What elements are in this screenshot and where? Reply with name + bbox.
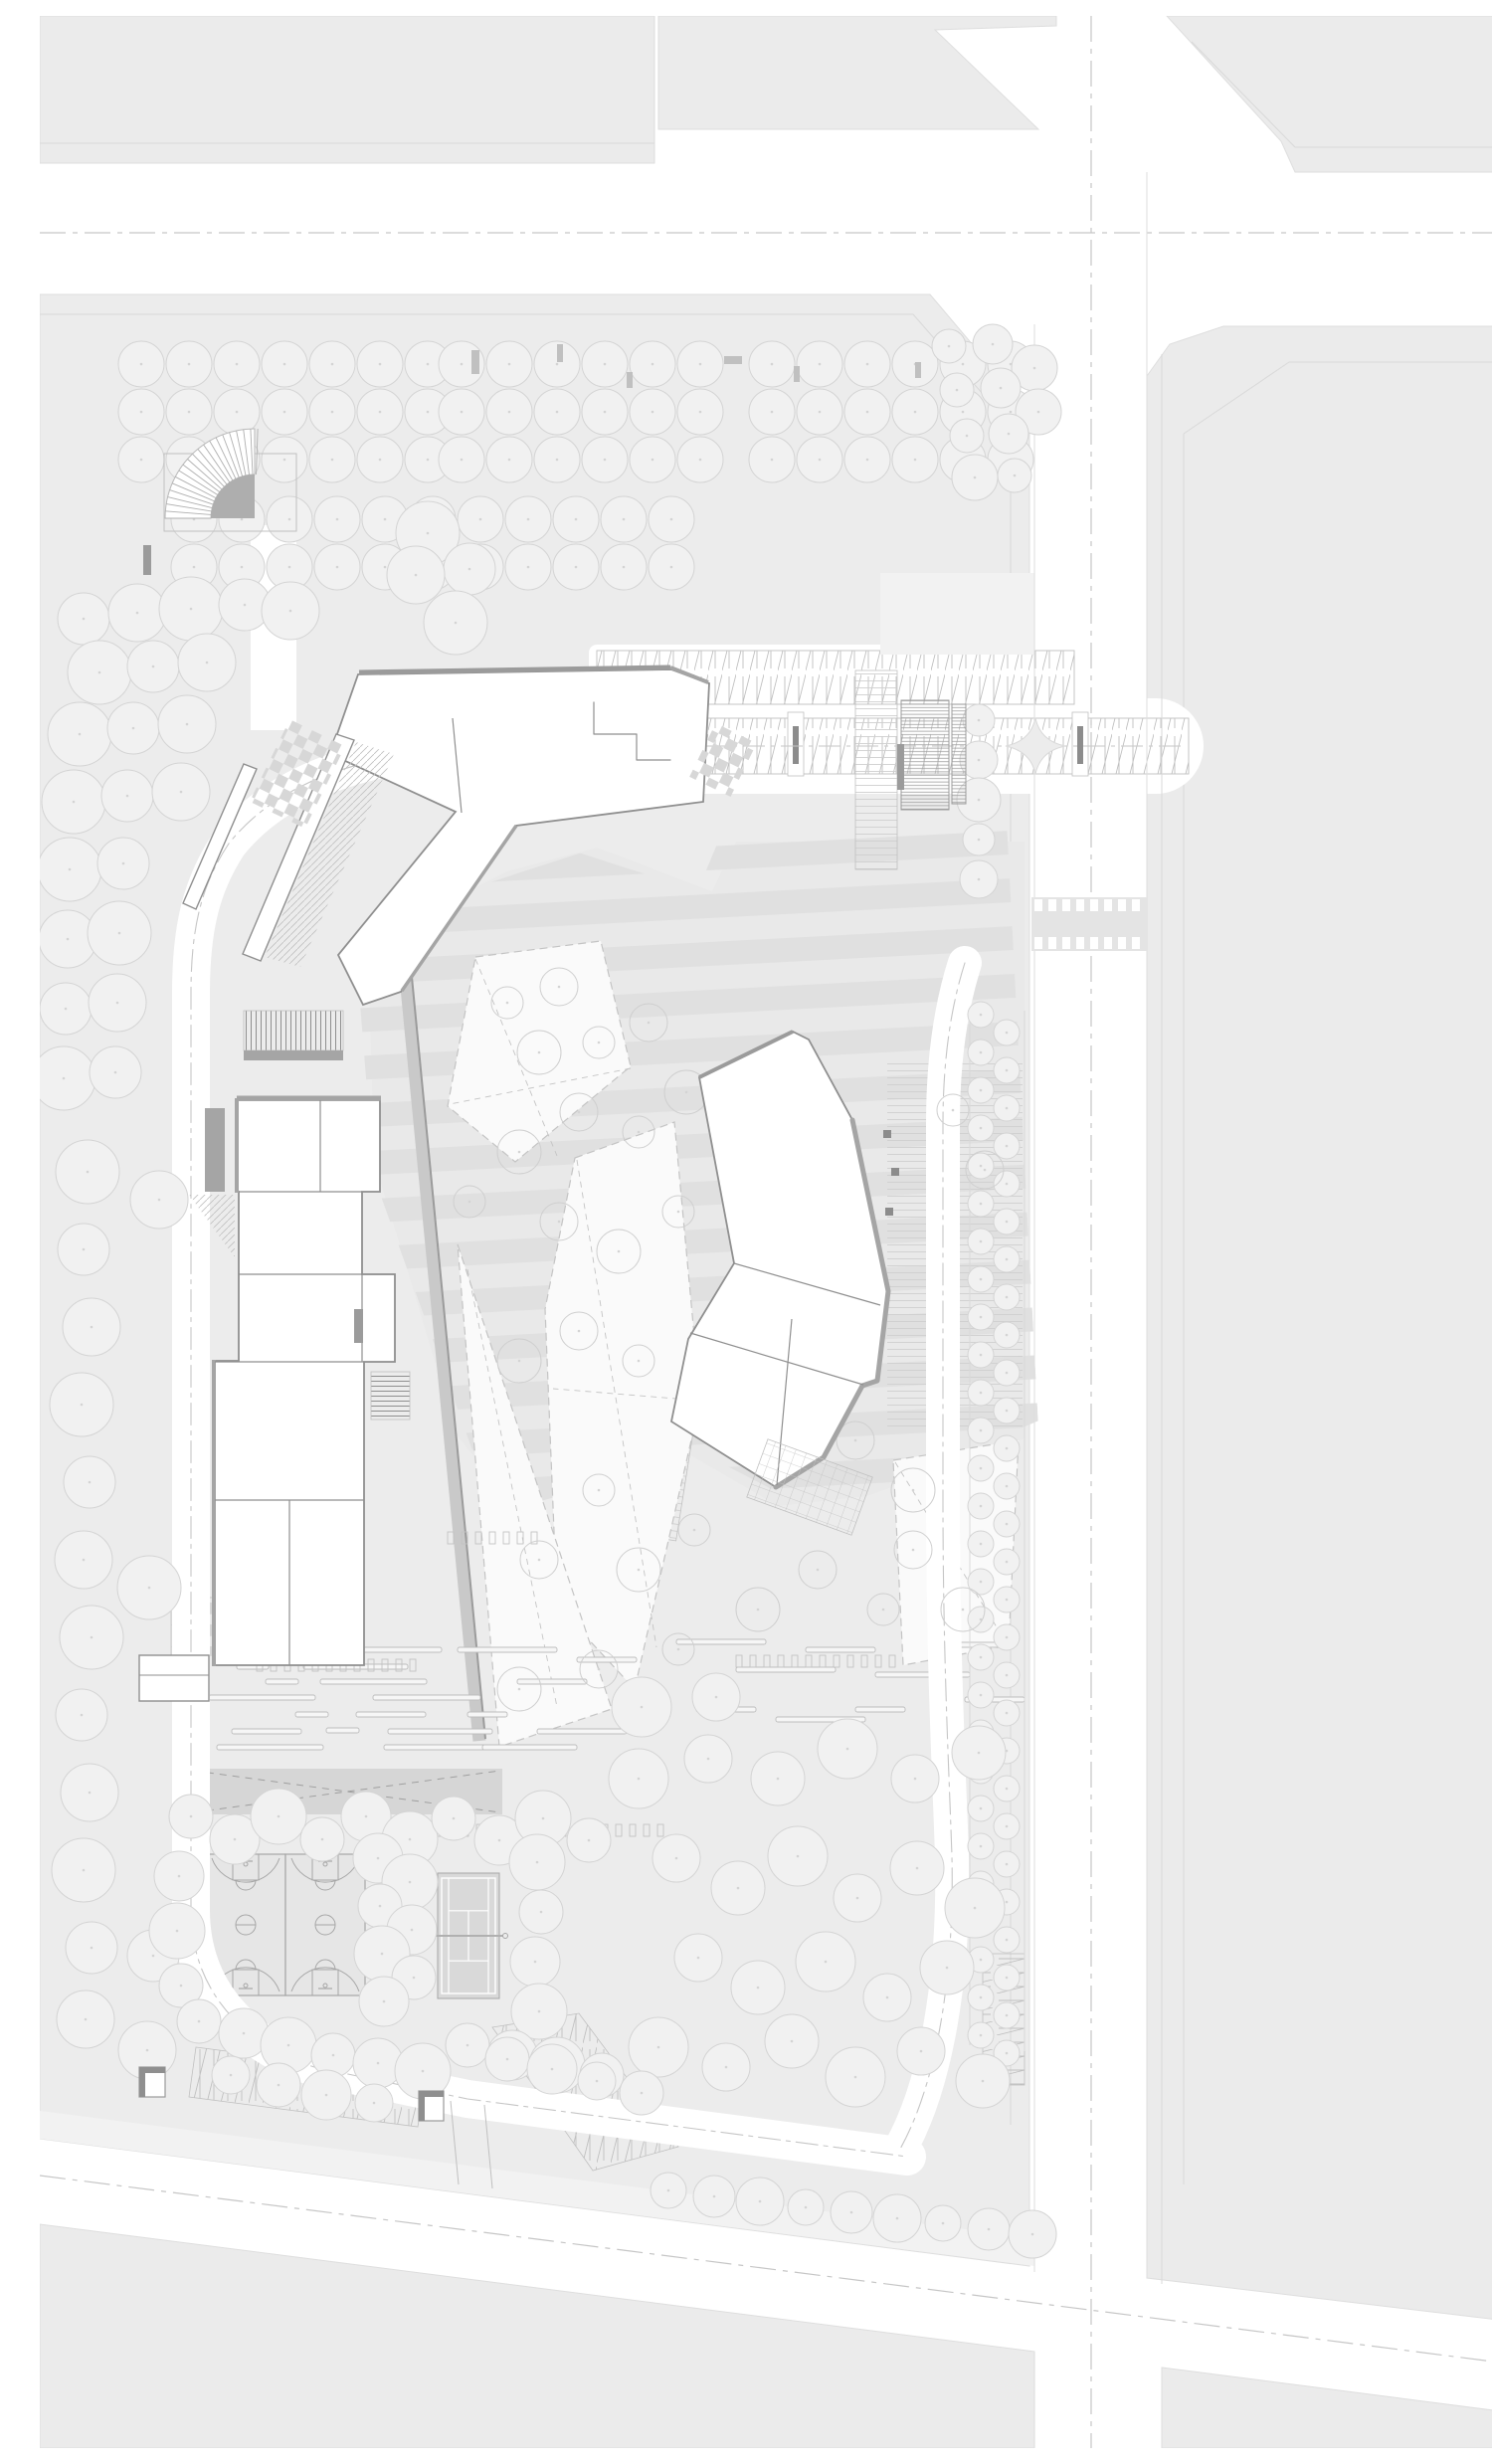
- tree-grid: [236, 411, 239, 414]
- bench-mark: [885, 1208, 893, 1216]
- tree-grid: [508, 459, 511, 462]
- forest-west: [180, 791, 183, 794]
- tree-grid: [331, 411, 334, 414]
- bench-mark: [891, 1168, 899, 1176]
- trees-southeast: [854, 2076, 857, 2079]
- trees-entry: [978, 719, 981, 722]
- tree-grid: [241, 518, 244, 521]
- trees-courts: [453, 1817, 456, 1820]
- bench-field: [209, 1695, 315, 1700]
- pergola-south: [371, 1372, 410, 1420]
- forest-west: [83, 1559, 86, 1562]
- trees-plaza: [518, 1688, 521, 1691]
- forest-west: [114, 1071, 117, 1074]
- crosswalk-ticks: [1118, 937, 1126, 949]
- forest-west: [122, 862, 125, 865]
- trees-southeast: [856, 1897, 859, 1900]
- trees-corner-ne: [966, 435, 969, 438]
- trees-courts: [287, 2044, 290, 2047]
- trees-corner-ne: [1037, 411, 1040, 414]
- ne-canopy-bar: [897, 744, 904, 790]
- verge-trees: [1006, 1788, 1009, 1791]
- verge-trees: [980, 1656, 983, 1659]
- forest-west: [98, 671, 101, 674]
- crosswalk-ticks: [1132, 899, 1140, 911]
- tree-grid: [819, 411, 822, 414]
- verge-trees: [1006, 1523, 1009, 1526]
- shelter-mark: [915, 362, 921, 378]
- forest-west: [126, 795, 129, 798]
- tree-grid: [652, 363, 654, 366]
- verge-trees: [1006, 1334, 1009, 1337]
- trees-plaza: [638, 1131, 641, 1134]
- trees-courts: [383, 2000, 386, 2003]
- verge-trees: [980, 1051, 983, 1054]
- tree-grid: [527, 518, 530, 521]
- trees-plaza: [618, 1250, 621, 1253]
- forest-west: [83, 1869, 86, 1872]
- site-plan-figure: [40, 16, 1492, 2448]
- tree-grid: [336, 566, 339, 569]
- trees-entry: [978, 839, 981, 842]
- trees-plaza: [677, 1211, 680, 1214]
- verge-trees: [980, 2034, 983, 2037]
- trees-plaza: [882, 1609, 885, 1611]
- trees-bottom-row: [759, 2200, 762, 2203]
- trees-southeast: [946, 1967, 949, 1970]
- tree-grid: [140, 411, 143, 414]
- trees-bottom-row: [942, 2222, 945, 2225]
- trees-bottom-row: [667, 2189, 670, 2192]
- verge-trees: [1006, 1863, 1009, 1866]
- trees-corner-ne: [956, 389, 959, 392]
- trees-courts: [381, 1953, 384, 1956]
- forest-west: [136, 612, 139, 615]
- tree-grid: [193, 566, 196, 569]
- trees-corner-ne: [1014, 474, 1017, 477]
- bench-field: [326, 1728, 359, 1733]
- tree-grid: [283, 411, 286, 414]
- shelter-mark: [724, 356, 742, 364]
- trees-southeast: [916, 1867, 919, 1870]
- bench-field: [537, 1729, 627, 1734]
- trees-southeast: [737, 1887, 740, 1890]
- bench-field: [232, 1729, 301, 1734]
- crosswalk-ticks: [1048, 937, 1056, 949]
- crosswalk-ticks: [1034, 937, 1042, 949]
- verge-trees: [1006, 1258, 1009, 1261]
- ne-canopy: [952, 704, 966, 804]
- crosswalk-ticks: [1090, 899, 1098, 911]
- tree-grid: [623, 566, 626, 569]
- trees-plaza: [468, 1201, 471, 1204]
- tree-grid: [866, 363, 869, 366]
- trees-courts: [409, 1881, 412, 1884]
- verge-trees: [1006, 1977, 1009, 1980]
- trees-courts: [466, 2044, 469, 2047]
- verge-trees: [1006, 1636, 1009, 1639]
- verge-trees: [980, 1996, 983, 1999]
- trees-plaza: [558, 986, 561, 989]
- tree-grid: [819, 363, 822, 366]
- tree-grid: [461, 459, 464, 462]
- tree-grid: [556, 363, 559, 366]
- tree-grid: [914, 459, 917, 462]
- tree-grid: [699, 363, 702, 366]
- verge-trees: [1006, 2052, 1009, 2055]
- trees-plaza: [518, 1360, 521, 1363]
- trees-courts: [332, 2054, 335, 2057]
- crosswalk-ticks: [1034, 899, 1042, 911]
- trees-bottom-row: [988, 2228, 991, 2231]
- tree-grid: [623, 518, 626, 521]
- tree-grid: [771, 459, 774, 462]
- tree-grid: [771, 411, 774, 414]
- forest-west: [73, 801, 76, 804]
- bench-field: [388, 1729, 492, 1734]
- verge-trees: [1006, 1069, 1009, 1072]
- trees-bottom-row: [805, 2206, 808, 2209]
- crosswalk-ticks: [1076, 937, 1084, 949]
- trees-plaza: [962, 1609, 965, 1611]
- bench-field: [373, 1695, 480, 1700]
- trees-plaza: [638, 1569, 641, 1572]
- trees-south-strip: [641, 2092, 644, 2095]
- crosswalk-ticks: [1132, 937, 1140, 949]
- forest-west: [468, 568, 471, 571]
- trees-southeast: [846, 1748, 849, 1751]
- forest-west: [455, 622, 458, 625]
- trees-plaza: [952, 1109, 955, 1112]
- trees-plaza: [538, 1559, 541, 1562]
- forest-west: [67, 938, 70, 941]
- stall-divider-post: [1077, 726, 1083, 764]
- tree-grid: [427, 363, 430, 366]
- tree-grid: [508, 411, 511, 414]
- tree-grid: [140, 363, 143, 366]
- verge-trees: [980, 1543, 983, 1546]
- tree-grid: [188, 411, 191, 414]
- forest-west: [63, 1077, 66, 1080]
- tree-grid: [288, 518, 291, 521]
- tree-grid: [140, 459, 143, 462]
- tree-grid: [962, 411, 965, 414]
- trees-southeast: [641, 1706, 644, 1709]
- trees-south-strip: [596, 2080, 599, 2083]
- tree-grid: [914, 411, 917, 414]
- trees-courts: [176, 1930, 179, 1933]
- bench-field: [736, 1667, 836, 1672]
- forest-west: [81, 1404, 84, 1407]
- stall-divider-post: [793, 726, 799, 764]
- trees-southeast: [715, 1696, 718, 1699]
- forest-west: [244, 604, 247, 607]
- tree-grid: [331, 459, 334, 462]
- forest-west: [91, 1326, 93, 1329]
- bench-field: [295, 1712, 328, 1717]
- trees-entry: [978, 799, 981, 802]
- trees-corner-ne: [1000, 387, 1003, 390]
- verge-trees: [1006, 1296, 1009, 1299]
- verge-trees: [980, 1127, 983, 1130]
- tree-grid: [236, 363, 239, 366]
- trees-plaza: [817, 1569, 820, 1572]
- verge-trees: [980, 1581, 983, 1584]
- trees-plaza: [984, 1169, 987, 1172]
- trees-courts: [377, 2062, 380, 2065]
- tree-grid: [670, 566, 673, 569]
- crosswalk-ticks: [1104, 899, 1112, 911]
- trees-courts: [379, 1905, 382, 1908]
- trees-courts: [542, 1817, 545, 1820]
- forest-west: [116, 1002, 119, 1005]
- trees-plaza: [912, 1489, 915, 1492]
- forest-west: [89, 1792, 92, 1795]
- verge-trees: [1006, 1939, 1009, 1942]
- verge-trees: [980, 1316, 983, 1319]
- verge-trees: [980, 1959, 983, 1962]
- trees-southeast: [638, 1778, 641, 1781]
- trees-corner-ne: [992, 343, 995, 346]
- trees-courts: [422, 2070, 425, 2073]
- forest-west: [206, 662, 209, 664]
- trees-southeast: [697, 1957, 700, 1960]
- forest-west: [427, 532, 430, 535]
- trees-southeast: [978, 1752, 981, 1755]
- forest-west: [87, 1171, 90, 1174]
- verge-trees: [980, 1505, 983, 1508]
- building-b-annex: [139, 1655, 209, 1701]
- verge-trees: [980, 1014, 983, 1017]
- trees-courts: [534, 1961, 537, 1964]
- trees-plaza: [693, 1529, 696, 1532]
- tree-grid: [652, 411, 654, 414]
- bench-field: [855, 1707, 905, 1712]
- verge-trees: [1006, 1372, 1009, 1375]
- bench-field: [217, 1745, 323, 1750]
- verge-trees: [1006, 1183, 1009, 1186]
- verge-trees: [1006, 1107, 1009, 1110]
- trees-courts: [278, 1815, 280, 1818]
- bench-mark: [354, 1309, 363, 1343]
- forest-west: [186, 723, 189, 726]
- forest-west: [69, 868, 72, 871]
- forest-west: [91, 1947, 93, 1950]
- verge-trees: [980, 1354, 983, 1357]
- forest-west: [89, 1481, 92, 1484]
- trees-southeast: [797, 1855, 800, 1858]
- tree-grid: [379, 411, 382, 414]
- trees-plaza: [538, 1051, 541, 1054]
- verge-trees: [980, 1089, 983, 1092]
- trees-courts: [190, 1815, 193, 1818]
- tree-grid: [288, 566, 291, 569]
- trees-plaza: [685, 1091, 688, 1094]
- trees-southeast: [982, 2080, 985, 2083]
- trees-courts: [540, 1911, 543, 1914]
- bench-field: [577, 1657, 637, 1662]
- trees-southeast: [920, 2050, 923, 2053]
- crosswalk-ticks: [1104, 937, 1112, 949]
- trees-courts: [243, 2032, 246, 2035]
- trees-south-strip: [325, 2094, 328, 2097]
- trees-southeast: [777, 1778, 780, 1781]
- tree-grid: [575, 518, 578, 521]
- verge-trees: [980, 1694, 983, 1697]
- trees-courts: [536, 1861, 539, 1864]
- trees-corner-ne: [948, 345, 951, 348]
- tree-grid: [461, 363, 464, 366]
- trees-south-strip: [278, 2084, 280, 2087]
- trees-plaza: [677, 1648, 680, 1651]
- trees-southeast: [974, 1907, 977, 1910]
- bench-field: [806, 1647, 875, 1652]
- bench-field: [676, 1639, 766, 1644]
- tree-grid: [819, 459, 822, 462]
- trees-southeast: [657, 2046, 660, 2049]
- crosswalk-ticks: [1118, 899, 1126, 911]
- trees-courts: [377, 1857, 380, 1860]
- tree-grid: [527, 566, 530, 569]
- trees-southeast: [675, 1857, 678, 1860]
- trees-courts: [409, 1838, 412, 1841]
- trees-plaza: [598, 1668, 601, 1671]
- tree-grid: [283, 363, 286, 366]
- trees-southeast: [825, 1961, 828, 1964]
- tree-grid: [283, 459, 286, 462]
- bench-field: [517, 1679, 587, 1684]
- forest-west: [81, 1714, 84, 1717]
- trees-plaza: [598, 1042, 601, 1044]
- forest-west: [148, 1587, 151, 1590]
- trees-bottom-row: [713, 2195, 716, 2198]
- verge-trees: [980, 1467, 983, 1470]
- trees-entry: [978, 759, 981, 762]
- trees-courts: [321, 1838, 324, 1841]
- bench-field: [384, 1745, 491, 1750]
- tree-grid: [241, 566, 244, 569]
- bench-field: [320, 1679, 427, 1684]
- block-top-left: [40, 16, 654, 163]
- tree-grid: [604, 363, 607, 366]
- tree-grid: [699, 411, 702, 414]
- tree-grid: [384, 518, 387, 521]
- tree-grid: [866, 459, 869, 462]
- trees-southeast: [791, 2040, 794, 2043]
- bench-mark: [143, 545, 151, 575]
- trees-courts: [588, 1839, 591, 1842]
- verge-trees: [1006, 1221, 1009, 1224]
- trees-corner-ne: [1008, 433, 1011, 436]
- bench-field: [356, 1712, 426, 1717]
- tree-grid: [479, 518, 482, 521]
- forest-west: [289, 610, 292, 613]
- trees-plaza: [578, 1330, 581, 1333]
- forest-west: [118, 932, 121, 935]
- trees-south-strip: [551, 2068, 554, 2071]
- verge-trees: [1006, 1712, 1009, 1715]
- tree-grid: [771, 363, 774, 366]
- tree-grid: [556, 459, 559, 462]
- building-b-canopy: [205, 1108, 225, 1192]
- block-right: [1147, 326, 1492, 2324]
- plan-layers: [40, 16, 1492, 2448]
- verge-trees: [1006, 1447, 1009, 1450]
- trees-southeast: [757, 1987, 760, 1990]
- tree-grid: [556, 411, 559, 414]
- bench-field: [482, 1745, 577, 1750]
- trees-southeast: [725, 2066, 728, 2069]
- tree-grid: [508, 363, 511, 366]
- trees-courts: [411, 1929, 414, 1932]
- tree-grid: [188, 363, 191, 366]
- tree-grid: [670, 518, 673, 521]
- entry-plaza: [880, 573, 1034, 655]
- verge-trees: [1006, 1410, 1009, 1413]
- trees-plaza: [598, 1489, 601, 1492]
- tree-grid: [866, 411, 869, 414]
- trees-plaza: [648, 1022, 651, 1025]
- forest-west: [91, 1636, 93, 1639]
- trees-south-strip: [506, 2058, 509, 2061]
- verge-trees: [980, 1240, 983, 1243]
- tree-grid: [962, 363, 965, 366]
- trees-courts: [413, 1977, 416, 1980]
- tree-grid: [575, 566, 578, 569]
- tree-grid: [461, 411, 464, 414]
- trees-south-strip: [230, 2074, 233, 2077]
- verge-trees: [1006, 1561, 1009, 1564]
- forest-west: [85, 2018, 88, 2021]
- trees-courts: [365, 1815, 368, 1818]
- verge-trees: [1006, 1674, 1009, 1677]
- forest-west: [83, 618, 86, 621]
- verge-trees: [980, 1165, 983, 1168]
- tree-grid: [652, 459, 654, 462]
- trees-plaza: [912, 1549, 915, 1552]
- crosswalk-ticks: [1048, 899, 1056, 911]
- bench-mark: [883, 1130, 891, 1138]
- tree-grid: [331, 363, 334, 366]
- pergola-north: [244, 1011, 343, 1050]
- trees-corner-ne: [1033, 367, 1036, 370]
- crosswalk-ticks: [1062, 899, 1070, 911]
- verge-trees: [1006, 1599, 1009, 1602]
- trees-bottom-row: [1031, 2233, 1034, 2236]
- verge-trees: [1006, 1825, 1009, 1828]
- trees-plaza: [578, 1111, 581, 1114]
- forest-west: [83, 1248, 86, 1251]
- verge-trees: [1006, 1901, 1009, 1904]
- forest-west: [79, 733, 82, 736]
- forest-west: [146, 2049, 149, 2052]
- crosswalk-ticks: [1076, 899, 1084, 911]
- ne-canopy: [901, 700, 949, 810]
- shelter-mark: [557, 344, 563, 362]
- trees-courts: [178, 1875, 181, 1878]
- tree-grid: [604, 459, 607, 462]
- trees-bottom-row: [850, 2211, 853, 2214]
- trees-plaza: [518, 1151, 521, 1154]
- tree-grid: [604, 411, 607, 414]
- site-plan-drawing: [40, 16, 1492, 2448]
- trees-entry: [978, 878, 981, 881]
- shelter-mark: [627, 372, 633, 388]
- crosswalk-ticks: [1090, 937, 1098, 949]
- tree-grid: [1010, 411, 1013, 414]
- tree-grid: [384, 566, 387, 569]
- trees-southeast: [886, 1996, 889, 1999]
